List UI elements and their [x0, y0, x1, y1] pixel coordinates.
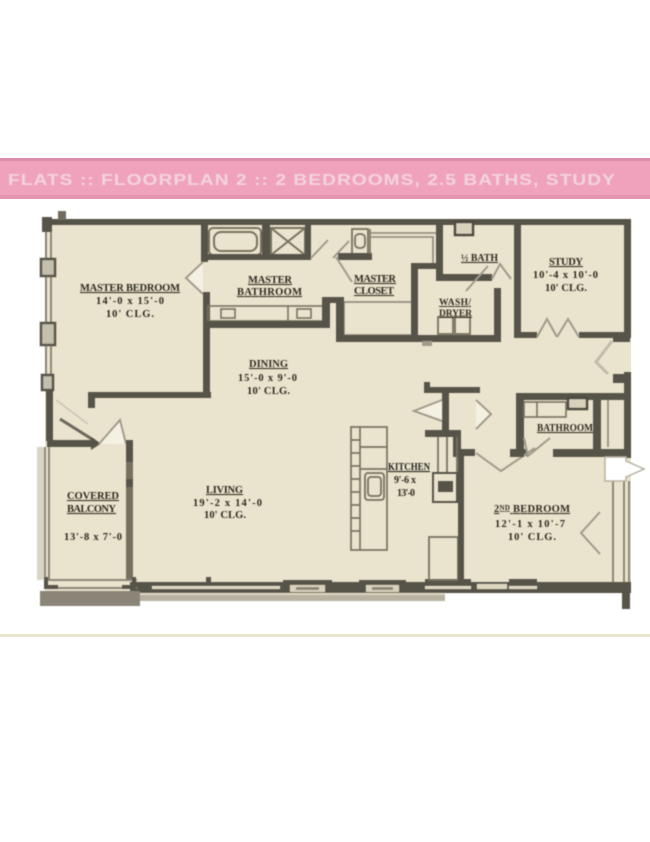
svg-text:STUDY: STUDY [549, 257, 583, 268]
svg-text:BATHROOM: BATHROOM [537, 423, 593, 434]
svg-text:DRYER: DRYER [439, 309, 472, 319]
svg-text:MASTER: MASTER [248, 275, 292, 286]
svg-text:10'-4 x 10'-0: 10'-4 x 10'-0 [533, 270, 598, 281]
svg-text:COVERED: COVERED [67, 491, 119, 502]
svg-text:FLATS :: FLOORPLAN 2 :: 2 BEDR: FLATS :: FLOORPLAN 2 :: 2 BEDROOMS, 2.5 … [8, 172, 616, 189]
svg-text:WASH/: WASH/ [439, 298, 471, 308]
svg-text:LIVING: LIVING [206, 485, 243, 496]
svg-text:12'-1 x 10'-7: 12'-1 x 10'-7 [495, 519, 565, 530]
svg-text:10' CLG.: 10' CLG. [204, 510, 246, 521]
svg-text:19'-2 x 14'-0: 19'-2 x 14'-0 [193, 498, 262, 509]
svg-text:10' CLG.: 10' CLG. [508, 532, 556, 543]
svg-text:15'-0 x 9'-0: 15'-0 x 9'-0 [238, 373, 297, 384]
svg-text:10' CLG.: 10' CLG. [545, 283, 587, 294]
svg-text:13'-8 x 7'-0: 13'-8 x 7'-0 [64, 532, 122, 543]
svg-text:KITCHEN: KITCHEN [388, 461, 430, 473]
svg-text:13'-0: 13'-0 [397, 488, 415, 499]
svg-text:BATHROOM: BATHROOM [237, 287, 302, 298]
svg-text:9'-6 x: 9'-6 x [394, 475, 416, 486]
svg-text:½ BATH: ½ BATH [461, 253, 498, 264]
svg-text:MASTER: MASTER [354, 274, 396, 285]
svg-text:MASTER BEDROOM: MASTER BEDROOM [80, 283, 180, 294]
svg-text:10' CLG.: 10' CLG. [106, 309, 154, 320]
svg-text:14'-0 x 15'-0: 14'-0 x 15'-0 [96, 296, 164, 307]
svg-text:BALCONY: BALCONY [67, 504, 116, 515]
svg-text:CLOSET: CLOSET [354, 286, 394, 297]
svg-text:10' CLG.: 10' CLG. [247, 386, 290, 397]
svg-text:DINING: DINING [249, 359, 288, 370]
